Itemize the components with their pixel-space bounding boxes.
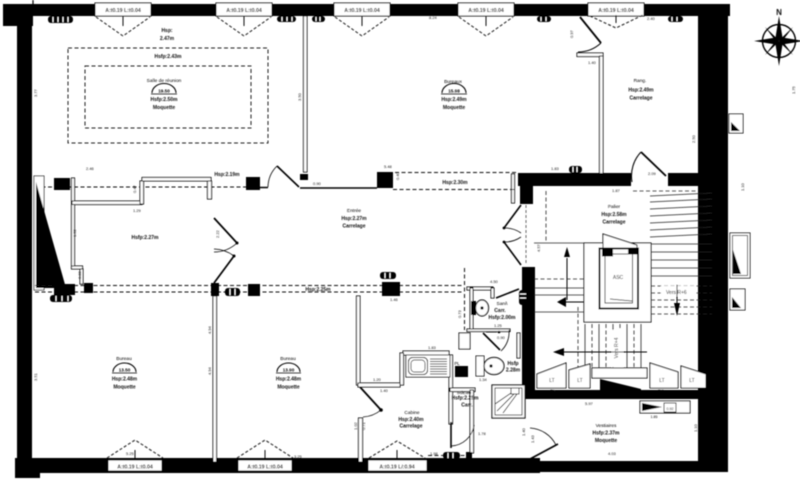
svg-text:Hsp:2.49m: Hsp:2.49m	[441, 97, 467, 103]
svg-text:Carrelage: Carrelage	[629, 96, 652, 102]
svg-text:Hsp:2.30m: Hsp:2.30m	[442, 180, 468, 186]
svg-text:1.78: 1.78	[478, 431, 487, 436]
svg-text:1.75: 1.75	[791, 85, 796, 94]
svg-text:1.40: 1.40	[521, 427, 526, 436]
svg-text:5.97: 5.97	[585, 401, 594, 406]
svg-text:4.94: 4.94	[207, 366, 212, 375]
svg-text:1.40: 1.40	[588, 60, 597, 65]
svg-text:Hsfp:2.37m: Hsfp:2.37m	[593, 431, 621, 437]
svg-text:Moquette: Moquette	[595, 438, 617, 444]
svg-text:Hsp:: Hsp:	[161, 28, 172, 34]
svg-text:Carr.: Carr.	[494, 308, 506, 314]
svg-text:2.50: 2.50	[691, 134, 696, 143]
svg-text:A:t0.19 L:t0.04: A:t0.19 L:t0.04	[117, 465, 153, 471]
svg-text:Palier: Palier	[608, 204, 621, 210]
svg-text:0.97: 0.97	[569, 29, 574, 38]
svg-text:Sani\: Sani\	[497, 301, 509, 307]
svg-text:0.71: 0.71	[361, 421, 366, 430]
svg-text:A:t0.19 L:t0.04: A:t0.19 L:t0.04	[598, 8, 634, 14]
svg-text:0.90: 0.90	[497, 335, 506, 340]
svg-text:1.34: 1.34	[479, 377, 488, 382]
svg-text:3.51: 3.51	[33, 372, 38, 381]
svg-text:Entrée: Entrée	[347, 208, 361, 214]
svg-text:1.10: 1.10	[693, 423, 698, 432]
svg-text:Hsfp:2.27m: Hsfp:2.27m	[132, 235, 160, 241]
svg-text:1.83: 1.83	[551, 166, 560, 171]
svg-text:LT: LT	[659, 378, 664, 384]
svg-text:2.47m: 2.47m	[160, 36, 175, 42]
svg-text:LT: LT	[577, 378, 582, 384]
svg-text:8.24: 8.24	[429, 15, 438, 20]
svg-text:Moquette: Moquette	[153, 105, 175, 111]
svg-text:Hsp:2.25m: Hsp:2.25m	[305, 287, 331, 293]
svg-text:2.46: 2.46	[86, 166, 95, 171]
svg-text:4.50: 4.50	[490, 279, 499, 284]
svg-text:2.28m: 2.28m	[506, 368, 521, 374]
svg-text:19.50: 19.50	[158, 89, 170, 94]
svg-text:3.77: 3.77	[33, 88, 38, 97]
svg-text:2.40: 2.40	[647, 16, 656, 21]
svg-text:13.50: 13.50	[119, 368, 131, 373]
svg-text:R/e: R/e	[550, 389, 556, 393]
svg-text:0.90: 0.90	[313, 181, 322, 186]
svg-text:Moquette: Moquette	[277, 385, 299, 391]
svg-text:A:t0.19 L:t0.04: A:t0.19 L:t0.04	[247, 465, 283, 471]
svg-text:Vestiaires: Vestiaires	[596, 423, 617, 429]
svg-text:A:t0.19 L:t0.04: A:t0.19 L:t0.04	[344, 8, 380, 14]
svg-text:Hsfp:2.43m: Hsfp:2.43m	[155, 54, 183, 60]
svg-text:13.90: 13.90	[283, 368, 295, 373]
svg-text:LT: LT	[549, 378, 554, 384]
svg-text:Vers R+6: Vers R+6	[666, 290, 687, 296]
svg-text:1.43: 1.43	[530, 434, 535, 443]
svg-text:A:t0.19 L/:0.94: A:t0.19 L/:0.94	[379, 465, 414, 471]
svg-text:Carrelage: Carrelage	[342, 224, 365, 230]
svg-text:1.40: 1.40	[380, 388, 389, 393]
svg-text:5.25: 5.25	[126, 451, 135, 456]
svg-text:Moquette: Moquette	[113, 385, 135, 391]
svg-text:ASC: ASC	[613, 275, 624, 281]
svg-text:1.87: 1.87	[612, 188, 621, 193]
svg-text:N: N	[776, 8, 782, 17]
svg-text:Bureau: Bureau	[280, 356, 296, 362]
svg-text:A:t0.19 L:t0.04: A:t0.19 L:t0.04	[226, 8, 262, 14]
svg-text:PL: PL	[454, 361, 460, 366]
svg-text:1.83: 1.83	[428, 345, 437, 350]
svg-text:0.47: 0.47	[132, 184, 137, 193]
svg-text:4.57: 4.57	[536, 243, 541, 252]
svg-text:Vers R+4: Vers R+4	[614, 337, 620, 358]
svg-text:4.03: 4.03	[608, 451, 617, 456]
svg-text:Carr.: Carr.	[461, 403, 473, 409]
svg-text:1.25: 1.25	[494, 323, 503, 328]
svg-text:R/A: R/A	[658, 389, 665, 393]
svg-text:Hsfp: Hsfp	[507, 361, 518, 367]
svg-text:1.29: 1.29	[133, 208, 142, 213]
svg-text:1.52: 1.52	[72, 228, 77, 237]
svg-text:Bureau: Bureau	[116, 356, 132, 362]
svg-text:Cabine: Cabine	[404, 410, 420, 416]
svg-text:Hsfp:2.00m: Hsfp:2.00m	[489, 315, 517, 321]
svg-text:A:t0.19 L:t0.04: A:t0.19 L:t0.04	[468, 8, 504, 14]
svg-text:0.82: 0.82	[77, 270, 82, 279]
svg-text:Hsp:2.48m: Hsp:2.48m	[276, 377, 302, 383]
svg-text:Moquette: Moquette	[443, 105, 465, 111]
svg-text:1.10: 1.10	[740, 182, 745, 191]
svg-text:0.40: 0.40	[395, 171, 400, 180]
svg-text:0.73: 0.73	[457, 309, 462, 318]
svg-text:2.09: 2.09	[648, 171, 657, 176]
svg-text:Hsp:2.58m: Hsp:2.58m	[601, 212, 627, 218]
svg-text:Hsp:2.19m: Hsp:2.19m	[214, 172, 240, 178]
svg-text:Rang.: Rang.	[634, 78, 647, 84]
svg-text:4.94: 4.94	[207, 325, 212, 334]
svg-text:1.20: 1.20	[373, 377, 382, 382]
svg-text:1.86: 1.86	[651, 415, 658, 419]
svg-text:Hsfp:2.50m: Hsfp:2.50m	[151, 97, 179, 103]
svg-text:1.02: 1.02	[353, 421, 358, 430]
svg-text:3.25: 3.25	[294, 454, 303, 459]
svg-text:Hsp:2.40m: Hsp:2.40m	[398, 417, 424, 423]
svg-text:Carrelage: Carrelage	[399, 424, 422, 430]
svg-text:3.50: 3.50	[297, 92, 302, 101]
svg-text:15.98: 15.98	[448, 89, 460, 94]
svg-text:A:t0.19 L:t0.04: A:t0.19 L:t0.04	[105, 8, 141, 14]
svg-text:1.46: 1.46	[390, 297, 399, 302]
svg-text:Carrelage: Carrelage	[602, 220, 625, 226]
svg-text:LT: LT	[689, 378, 694, 384]
svg-text:Hsfp:2.25m: Hsfp:2.25m	[452, 396, 480, 402]
svg-text:0.92: 0.92	[667, 407, 674, 411]
svg-text:Hsp:2.49m: Hsp:2.49m	[628, 88, 654, 94]
svg-text:2.22: 2.22	[215, 229, 220, 238]
svg-text:Hsp:2.48m: Hsp:2.48m	[112, 377, 138, 383]
svg-text:5.48: 5.48	[384, 164, 393, 169]
svg-text:1.98: 1.98	[430, 451, 439, 456]
svg-text:Hsp:2.27m: Hsp:2.27m	[341, 216, 367, 222]
